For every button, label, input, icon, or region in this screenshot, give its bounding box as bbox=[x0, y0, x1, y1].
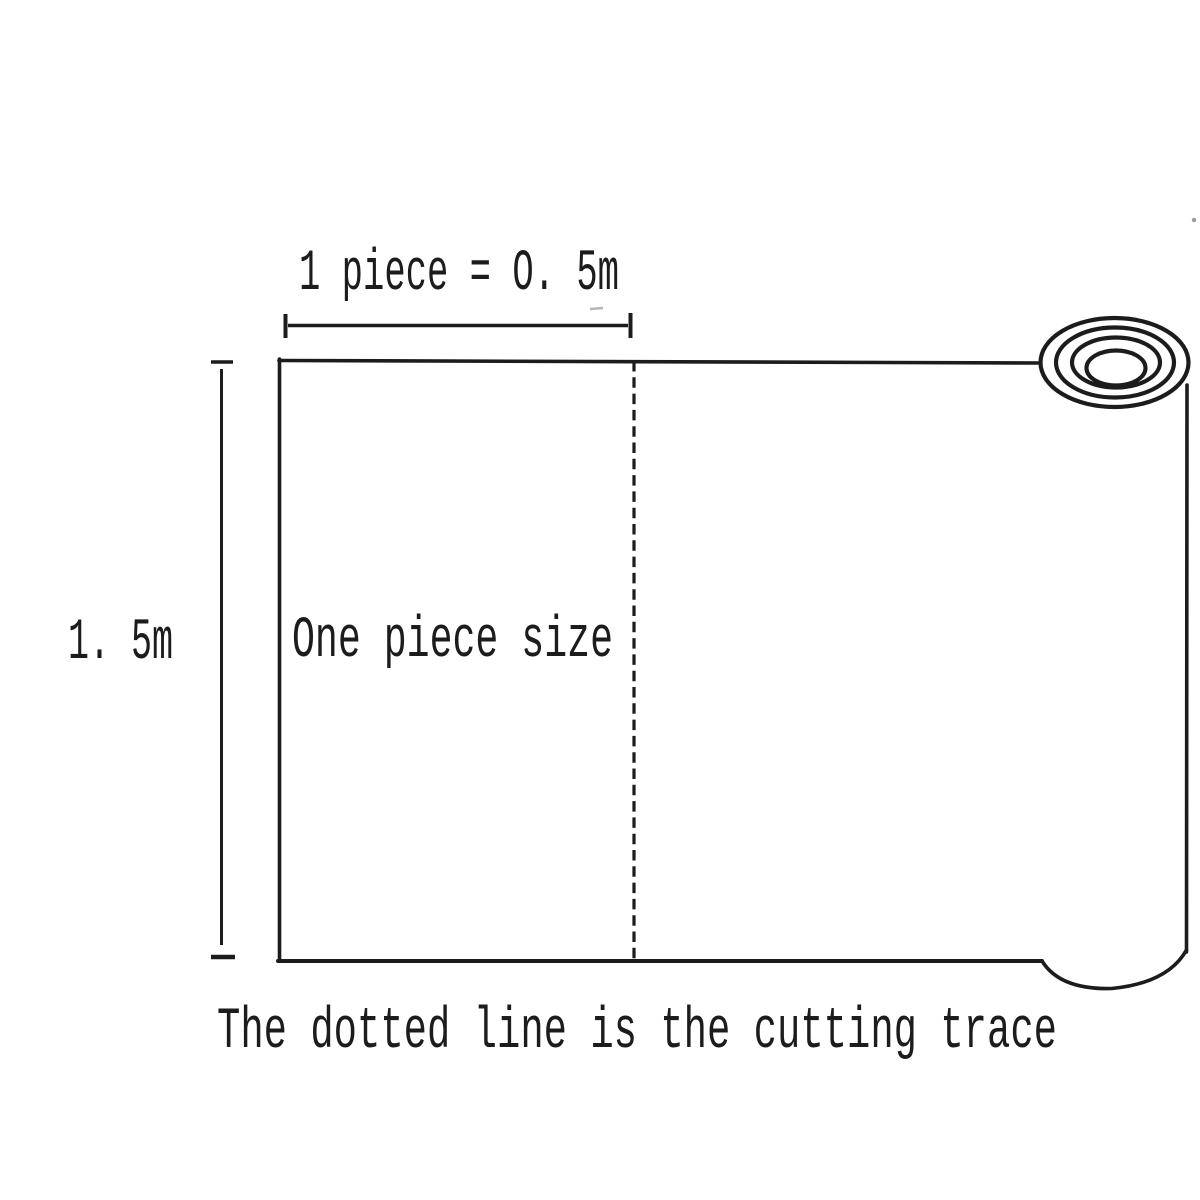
svg-text:One piece size: One piece size bbox=[292, 609, 613, 674]
svg-text:1. 5m: 1. 5m bbox=[68, 611, 173, 676]
svg-text:The dotted line is the cutting: The dotted line is the cutting trace bbox=[217, 1000, 1057, 1065]
svg-text:1 piece = O. 5m: 1 piece = O. 5m bbox=[299, 242, 619, 307]
